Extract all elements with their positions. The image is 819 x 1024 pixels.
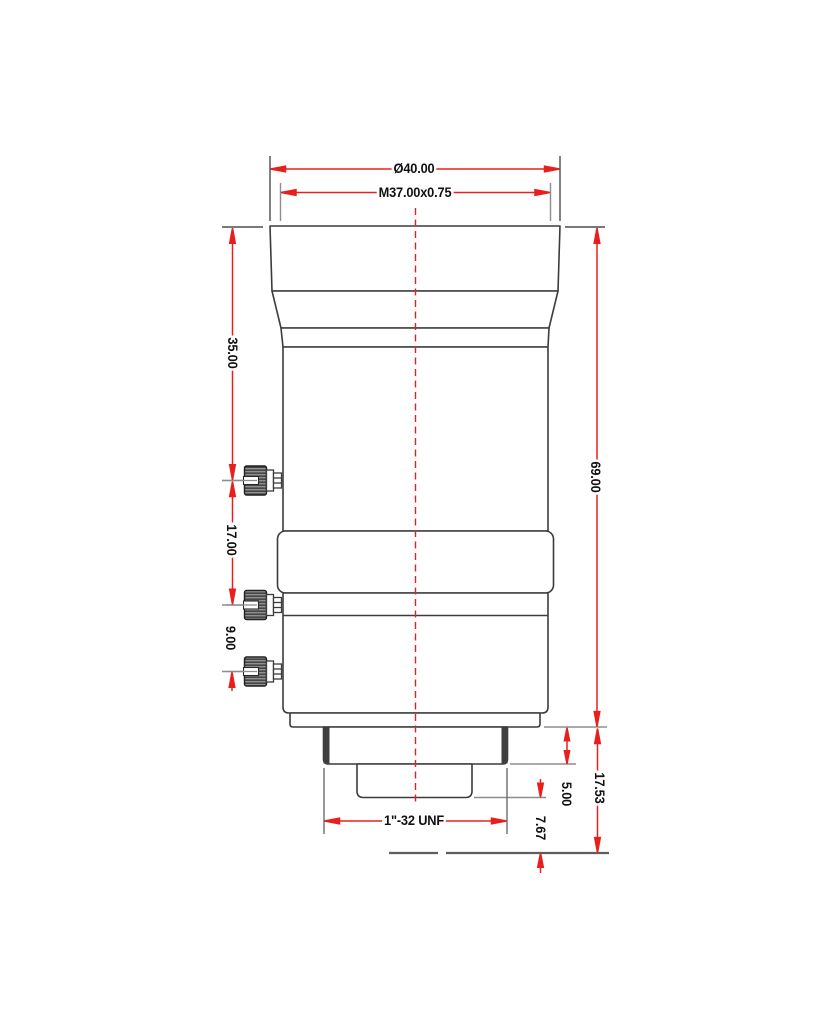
arrowhead: [594, 712, 600, 727]
arrowhead: [230, 465, 236, 480]
arrowhead: [545, 166, 560, 172]
dim-label-rear-protrusion: 7.67: [533, 814, 547, 842]
dimension-5: [564, 728, 569, 764]
dim-label-screw-spacing-upper: 17.00: [224, 523, 238, 558]
hood-taper: [272, 291, 558, 328]
lens-dimension-drawing: [0, 0, 819, 1024]
thumbscrew-collar: [267, 470, 274, 491]
arrowhead: [595, 838, 601, 853]
mount-barrel: [324, 727, 508, 764]
mount-thread-right: [502, 728, 508, 764]
thumbscrew-collar: [267, 661, 274, 682]
focus-ring: [278, 531, 554, 593]
dim-label-front-thread: M37.00x0.75: [376, 185, 453, 199]
arrowhead: [538, 783, 544, 797]
arrowhead: [538, 853, 544, 867]
arrowhead: [230, 228, 236, 243]
rear-inner-barrel: [357, 764, 472, 798]
dim-label-body-length: 69.00: [588, 460, 602, 495]
thumbscrew-collar: [267, 595, 274, 616]
arrowhead: [492, 818, 507, 824]
thumbscrew-stud: [274, 473, 282, 488]
arrowhead: [564, 728, 569, 741]
dim-label-screw-spacing-lower: 9.00: [223, 624, 237, 652]
arrowhead: [535, 190, 550, 196]
arrowhead: [595, 729, 601, 744]
arrowhead: [230, 482, 236, 497]
dim-label-outer-diameter: Ø40.00: [392, 162, 437, 176]
dim-label-rear-total: 17.53: [592, 771, 606, 806]
arrowhead: [325, 818, 340, 824]
thumbscrew-stud: [274, 664, 282, 679]
thumbscrew-stud: [274, 598, 282, 613]
dim-label-hood-length: 35.00: [224, 336, 238, 371]
arrowhead: [564, 751, 569, 764]
dim-label-mount-step: 5.00: [559, 780, 573, 808]
dim-label-rear-thread: 1"-32 UNF: [382, 814, 446, 828]
arrowhead: [281, 190, 296, 196]
arrowhead: [594, 228, 600, 243]
arrowhead: [229, 672, 235, 687]
technical-drawing-canvas: Ø40.00 M37.00x0.75 35.00 17.00 9.00 69.0…: [0, 0, 819, 1024]
dimension-9: [229, 672, 235, 691]
mount-thread-left: [324, 728, 330, 764]
arrowhead: [230, 589, 236, 604]
arrowhead: [271, 166, 286, 172]
